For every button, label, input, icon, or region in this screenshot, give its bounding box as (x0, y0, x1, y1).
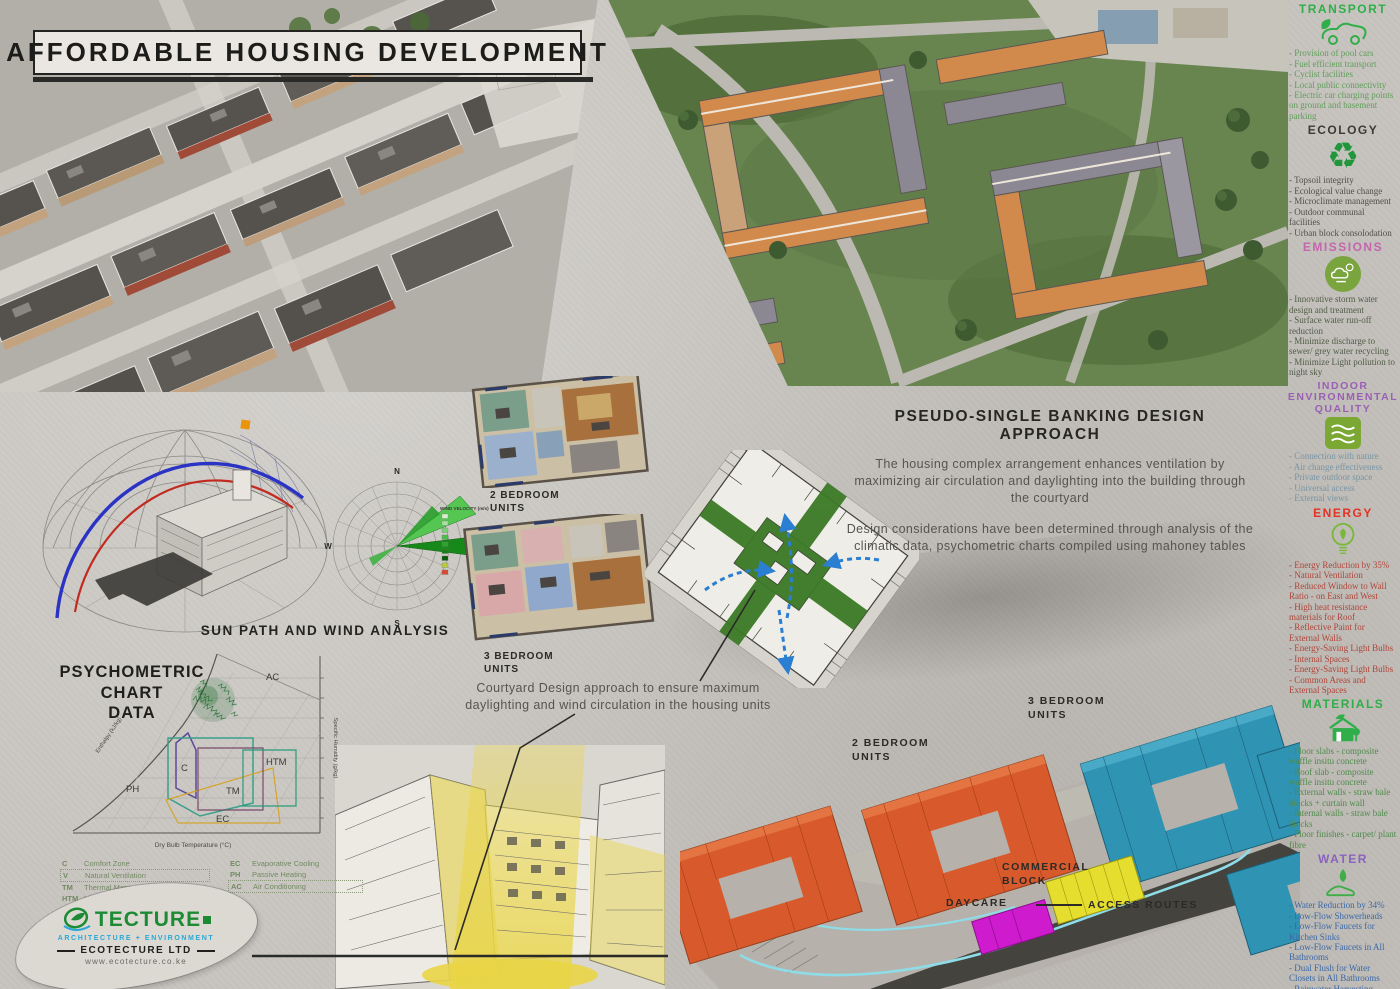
ecology-item: - Ecological value change (1289, 186, 1397, 196)
ecology-item: - Microclimate management (1289, 196, 1397, 206)
zone-label-tm: TM (226, 786, 240, 797)
indoor-quality-heading: INDOOR ENVIRONMENTAL QUALITY (1286, 381, 1400, 416)
access-routes-text: ACCESS ROUTES (1088, 898, 1198, 912)
zone-label-htm: HTM (266, 757, 287, 768)
water-item: - Low-Flow Faucets in All Bathrooms (1289, 942, 1397, 963)
materials-item: - External walls - straw bale blocks + c… (1289, 787, 1397, 808)
daylight-render (335, 745, 665, 989)
floor-plan-2br (468, 376, 658, 493)
design-approach-paragraph-2: Design considerations have been determin… (845, 521, 1255, 555)
water-item: - Water Reduction by 34% (1289, 900, 1397, 910)
legend-part: Passive Heating (252, 870, 306, 879)
storm-water-icon (1324, 255, 1362, 293)
presentation-board: AFFORDABLE HOUSING DEVELOPMENT (0, 0, 1400, 989)
wind-rose-north: N (394, 467, 400, 476)
site-label-access-routes: ACCESS ROUTES (1036, 898, 1198, 912)
eco-house-icon (1323, 713, 1363, 745)
sun-path-diagram (35, 380, 335, 643)
sidebar-section-indoor-quality: INDOOR ENVIRONMENTAL QUALITY - Connectio… (1286, 381, 1400, 504)
transport-item: - Local public connectivity (1289, 80, 1397, 90)
logo-website: www.ecotecture.co.ke (85, 957, 187, 966)
water-heading: WATER (1286, 853, 1400, 866)
legend-part: EC (230, 859, 252, 868)
sun-wind-title: SUN PATH AND WIND ANALYSIS (200, 623, 450, 638)
title-underline (33, 77, 593, 82)
ecology-item: - Outdoor communal facilities (1289, 207, 1397, 228)
indoor-quality-list: - Connection with nature- Air change eff… (1286, 451, 1400, 503)
psy-ylabel: Specific Humidity (g/kg) (332, 718, 338, 779)
emissions-item: - Surface water run-off reduction (1289, 315, 1397, 336)
energy-item: - Reduced Window to Wall Ratio - on East… (1289, 581, 1397, 602)
logo-company-row: ECOTECTURE LTD (57, 945, 214, 956)
zone-label-ac: AC (266, 672, 279, 683)
indoor-quality-item: - Air change effectiveness (1289, 462, 1397, 472)
design-approach-block: PSEUDO-SINGLE BANKING DESIGN APPROACH Th… (845, 408, 1255, 568)
access-routes-line (1036, 904, 1082, 906)
psy-xlabel: Dry Bulb Temperature (°C) (155, 841, 232, 849)
emissions-item: - Minimize Light pollution to night sky (1289, 357, 1397, 378)
indoor-quality-item: - External views (1289, 493, 1397, 503)
sidebar-section-emissions: EMISSIONS - Innovative storm water desig… (1286, 241, 1400, 378)
legend-part: Comfort Zone (84, 859, 130, 868)
sidebar-section-water: WATER - Water Reduction by 34%- Low-Flow… (1286, 853, 1400, 989)
logo-tagline: ARCHITECTURE + ENVIRONMENT (58, 935, 215, 942)
logo-company-name: ECOTECTURE LTD (80, 945, 191, 956)
transport-item: - Cyclist facilities (1289, 69, 1397, 79)
car-leaf-icon (1317, 17, 1369, 47)
sidebar-section-transport: TRANSPORT - Provision of pool cars- Fuel… (1286, 3, 1400, 121)
energy-item: - Natural Ventilation (1289, 570, 1397, 580)
dash-left (57, 950, 75, 952)
legend-part: Natural Ventilation (85, 871, 146, 880)
zone-label-ph: PH (126, 784, 139, 795)
transport-item: - Provision of pool cars (1289, 48, 1397, 58)
energy-heading: ENERGY (1286, 507, 1400, 520)
transport-heading: TRANSPORT (1286, 3, 1400, 16)
transport-item: - Fuel efficient transport (1289, 59, 1397, 69)
aerial-right-illustration (598, 0, 1288, 386)
air-quality-icon (1323, 416, 1363, 450)
legend-entry: VNatural Ventilation (60, 869, 210, 882)
materials-item: - Internal walls - straw bale blocks (1289, 808, 1397, 829)
sustainability-sidebar: TRANSPORT - Provision of pool cars- Fuel… (1286, 0, 1400, 989)
emissions-item: - Minimize discharge to sewer/ grey wate… (1289, 336, 1397, 357)
emissions-list: - Innovative storm water design and trea… (1286, 294, 1400, 378)
site-label-3br: 3 BEDROOM UNITS (1028, 694, 1105, 722)
site-label-daycare: DAYCARE (946, 896, 1007, 910)
indoor-quality-item: - Connection with nature (1289, 451, 1397, 461)
wind-legend-title: WIND VELOCITY (m/s) (440, 506, 489, 511)
water-hand-icon (1324, 867, 1362, 899)
logo-square-mark (203, 916, 211, 924)
water-list: - Water Reduction by 34%- Low-Flow Showe… (1286, 900, 1400, 989)
courtyard-caption: Courtyard Design approach to ensure maxi… (448, 680, 788, 714)
materials-heading: MATERIALS (1286, 698, 1400, 711)
sidebar-section-energy: ENERGY - Energy Reduction by 35%- Natura… (1286, 507, 1400, 696)
render-aerial-right (598, 0, 1288, 386)
water-item: - Low-Flow Showerheads (1289, 911, 1397, 921)
psychometric-heading: PSYCHOMETRIC CHART DATA (26, 662, 238, 724)
energy-item: - Energy Reduction by 35% (1289, 560, 1397, 570)
energy-list: - Energy Reduction by 35%- Natural Venti… (1286, 560, 1400, 696)
emissions-item: - Innovative storm water design and trea… (1289, 294, 1397, 315)
energy-item: - Energy-Saving Light Bulbs - Common Are… (1289, 664, 1397, 695)
sidebar-section-ecology: ECOLOGY ♻ - Topsoil integrity- Ecologica… (1286, 124, 1400, 238)
indoor-quality-item: - Private outdoor space (1289, 472, 1397, 482)
eco-leaf-logo-icon (61, 906, 93, 934)
water-item: - Dual Flush for Water Closets in All Ba… (1289, 963, 1397, 984)
recycle-icon: ♻ (1286, 138, 1400, 174)
wind-rose-west: W (324, 542, 332, 551)
transport-list: - Provision of pool cars- Fuel efficient… (1286, 48, 1400, 121)
ecology-item: - Topsoil integrity (1289, 175, 1397, 185)
materials-list: - Floor slabs - composite waffle insitu … (1286, 746, 1400, 850)
dash-right (197, 950, 215, 952)
zone-label-ec: EC (216, 814, 229, 825)
company-logo-block: TECTURE ARCHITECTURE + ENVIRONMENT ECOTE… (14, 886, 258, 986)
zone-label-c: C (181, 763, 188, 774)
ecology-item: - Urban block consolodation (1289, 228, 1397, 238)
emissions-heading: EMISSIONS (1286, 241, 1400, 254)
poster-title: AFFORDABLE HOUSING DEVELOPMENT (6, 37, 609, 68)
plan-2br-label: 2 BEDROOM UNITS (490, 489, 560, 515)
energy-item: - Energy-Saving Light Bulbs - Internal S… (1289, 643, 1397, 664)
water-item: - Low-Flow Faucets for Kitchen Sinks (1289, 921, 1397, 942)
legend-part: Air Conditioning (253, 882, 306, 891)
legend-part: PH (230, 870, 252, 879)
floor-plan-3br (460, 514, 660, 647)
logo-brand-text: TECTURE (95, 908, 201, 932)
legend-part: Evaporative Cooling (252, 859, 319, 868)
eco-bulb-icon (1326, 521, 1360, 559)
materials-item: - Floor slabs - composite waffle insitu … (1289, 746, 1397, 767)
indoor-quality-item: - Universal access (1289, 483, 1397, 493)
plan-3br-label: 3 BEDROOM UNITS (484, 650, 554, 676)
design-approach-paragraph-1: The housing complex arrangement enhances… (845, 456, 1255, 507)
sidebar-section-materials: MATERIALS - Floor slabs - composite waff… (1286, 698, 1400, 850)
materials-item: - Floor finishes - carpet/ plant fibre (1289, 829, 1397, 850)
legend-entry: PHPassive Heating (228, 869, 363, 880)
transport-item: - Electric car charging points on ground… (1289, 90, 1397, 121)
legend-part: C (62, 859, 84, 868)
site-label-2br: 2 BEDROOM UNITS (852, 736, 929, 764)
energy-item: - Reflective Paint for External Walls (1289, 622, 1397, 643)
legend-entry: CComfort Zone (60, 858, 210, 869)
ecology-list: - Topsoil integrity- Ecological value ch… (1286, 175, 1400, 238)
water-item: - Rainwater Harvesting System (1289, 984, 1397, 989)
design-approach-heading: PSEUDO-SINGLE BANKING DESIGN APPROACH (845, 408, 1255, 444)
energy-item: - High heat resistance materials for Roo… (1289, 602, 1397, 623)
legend-entry: ECEvaporative Cooling (228, 858, 363, 869)
materials-item: - Roof slab - composite waffle insitu co… (1289, 767, 1397, 788)
poster-title-box: AFFORDABLE HOUSING DEVELOPMENT (33, 30, 582, 75)
site-label-commercial: COMMERCIAL BLOCK (1002, 860, 1089, 888)
legend-part: V (63, 871, 85, 880)
